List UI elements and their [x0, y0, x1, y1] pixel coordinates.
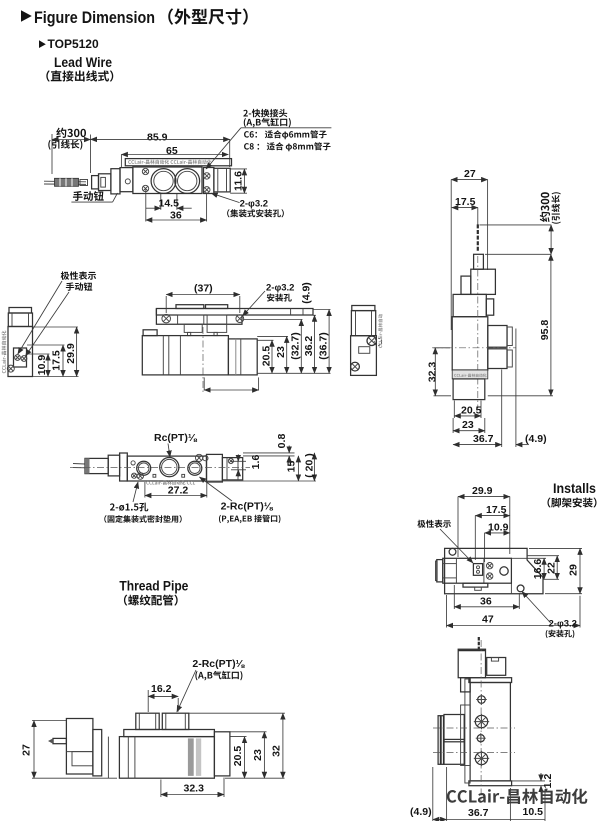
svg-text:17.5: 17.5	[455, 196, 476, 208]
svg-text:22: 22	[545, 562, 557, 574]
svg-text:32.3: 32.3	[184, 783, 205, 795]
svg-text:(4.9): (4.9)	[410, 806, 432, 818]
svg-text:Rc(PT)⅛: Rc(PT)⅛	[154, 432, 198, 444]
svg-text:36.2: 36.2	[303, 336, 315, 357]
svg-text:32: 32	[270, 745, 282, 757]
svg-text:23: 23	[275, 346, 287, 358]
svg-text:15: 15	[285, 461, 297, 473]
svg-text:Thread Pipe: Thread Pipe	[119, 579, 188, 594]
svg-text:10.9: 10.9	[488, 522, 509, 534]
svg-text:2-φ3.2: 2-φ3.2	[549, 619, 577, 630]
svg-text:10.5: 10.5	[523, 806, 544, 818]
svg-text:0.8: 0.8	[276, 434, 288, 449]
svg-text:(4.9): (4.9)	[300, 282, 312, 304]
svg-text:27: 27	[20, 744, 32, 756]
svg-text:(37): (37)	[194, 283, 213, 295]
svg-text:(36.7): (36.7)	[317, 332, 329, 359]
svg-text:2-φ3.2: 2-φ3.2	[240, 199, 268, 210]
svg-text:65: 65	[166, 145, 178, 157]
svg-text:85.9: 85.9	[147, 132, 168, 144]
svg-text:( 20 ): ( 20 )	[303, 453, 315, 478]
svg-text:11.6: 11.6	[232, 171, 244, 191]
svg-text:17.5: 17.5	[486, 504, 507, 516]
svg-text:27: 27	[464, 168, 476, 180]
svg-text:36: 36	[170, 209, 182, 221]
svg-text:36.7: 36.7	[468, 807, 489, 819]
svg-text:TOP5120: TOP5120	[48, 37, 99, 51]
svg-text:20.5: 20.5	[232, 746, 244, 767]
svg-text:29.9: 29.9	[65, 343, 77, 364]
svg-text:17.5: 17.5	[50, 350, 62, 371]
svg-text:23: 23	[252, 749, 264, 761]
svg-text:Installs: Installs	[553, 481, 596, 496]
svg-text:29: 29	[567, 564, 579, 576]
svg-text:10.9: 10.9	[36, 355, 48, 376]
svg-text:20.5: 20.5	[461, 404, 482, 416]
svg-text:32.3: 32.3	[426, 362, 438, 383]
svg-text:2-Rc(PT)⅛: 2-Rc(PT)⅛	[192, 658, 245, 670]
svg-text:1.2: 1.2	[542, 774, 554, 789]
svg-text:47: 47	[482, 614, 494, 626]
svg-text:2-φ3.2: 2-φ3.2	[266, 283, 294, 294]
svg-text:16.2: 16.2	[151, 683, 172, 695]
svg-text:(4.9): (4.9)	[525, 433, 547, 445]
svg-text:27.2: 27.2	[168, 485, 189, 497]
svg-text:36: 36	[480, 596, 492, 608]
svg-text:95.8: 95.8	[539, 320, 551, 341]
svg-text:23: 23	[462, 419, 474, 431]
svg-text:36.7: 36.7	[473, 433, 494, 445]
svg-text:(32.7): (32.7)	[290, 332, 302, 359]
svg-text:29.9: 29.9	[472, 485, 493, 497]
svg-text:Figure Dimension: Figure Dimension	[34, 8, 155, 27]
svg-text:2-Rc(PT)⅛: 2-Rc(PT)⅛	[221, 501, 274, 513]
svg-text:20.5: 20.5	[260, 346, 272, 367]
svg-text:Lead Wire: Lead Wire	[54, 55, 112, 70]
svg-text:14.5: 14.5	[159, 197, 180, 209]
svg-text:16.6: 16.6	[532, 559, 544, 580]
svg-text:1.6: 1.6	[250, 455, 262, 470]
